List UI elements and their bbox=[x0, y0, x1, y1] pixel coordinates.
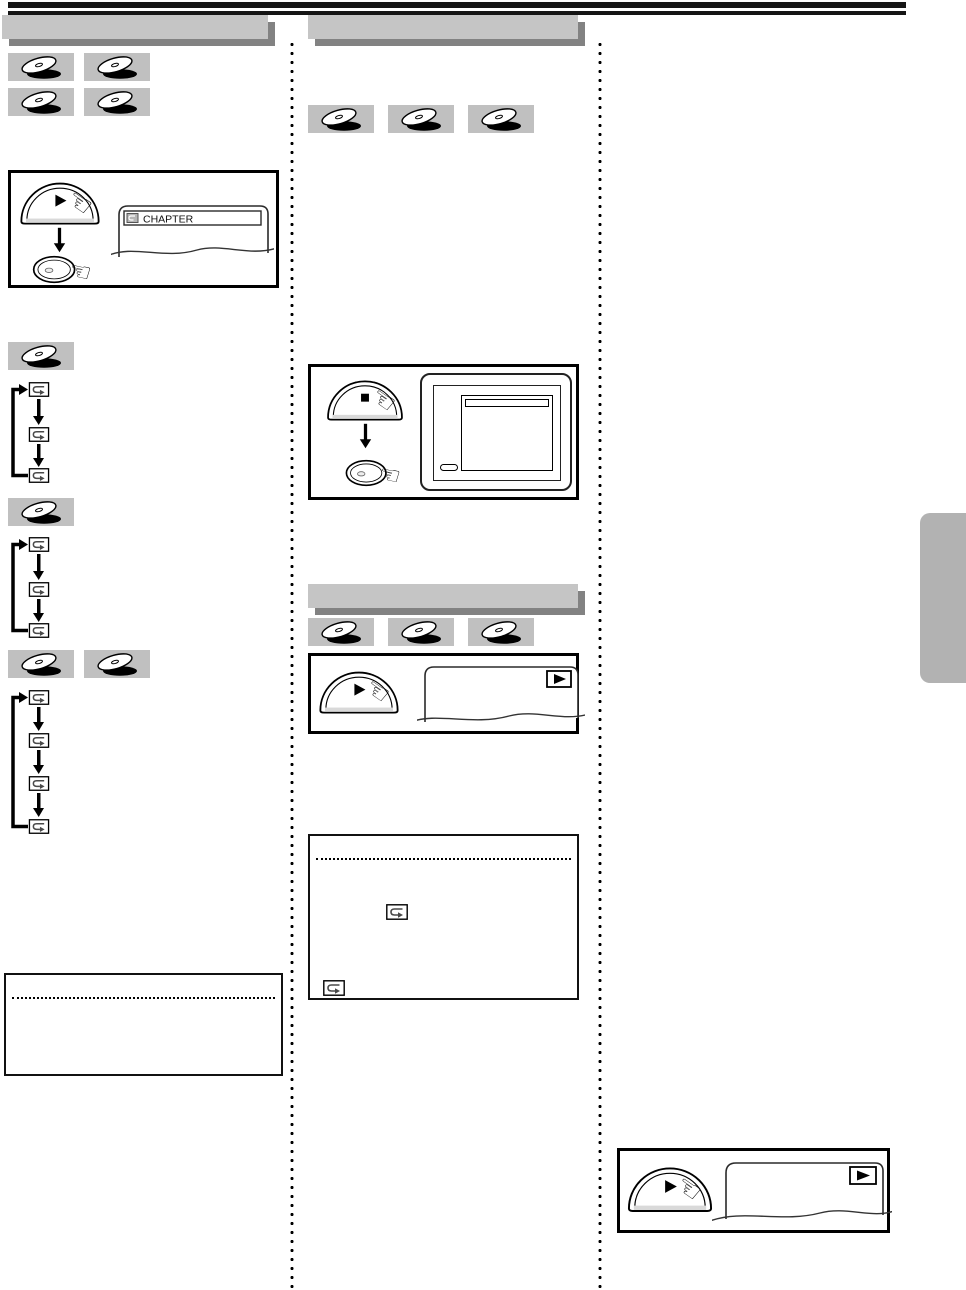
menu-pill bbox=[440, 464, 458, 471]
note-box bbox=[308, 834, 579, 1000]
repeat-icon bbox=[127, 214, 138, 223]
repeat-mode-cycle-diagram bbox=[4, 378, 62, 490]
disc-icon bbox=[8, 88, 74, 116]
repeat-icon bbox=[323, 980, 345, 996]
column-separator-right bbox=[598, 40, 602, 1290]
note-divider bbox=[12, 997, 275, 999]
disc-icon bbox=[8, 498, 74, 526]
repeat-mode-cycle-diagram bbox=[4, 533, 62, 645]
disc-icon bbox=[388, 105, 454, 133]
instruction-box-stop-menu: ☜ ☜ bbox=[308, 364, 579, 500]
osd-display: CHAPTER bbox=[111, 199, 274, 261]
section-header-middle-1 bbox=[308, 15, 578, 39]
instruction-box-chapter: ☜ ☜ CHAPTER bbox=[8, 170, 279, 288]
disc-icon bbox=[468, 105, 534, 133]
osd-display bbox=[712, 1155, 892, 1227]
manual-page: ☜ ☜ CHAPTER bbox=[0, 0, 966, 1290]
down-arrow-icon bbox=[359, 423, 372, 449]
page-edge-tab bbox=[920, 513, 966, 683]
top-rule-1 bbox=[8, 2, 906, 8]
osd-display bbox=[417, 660, 585, 728]
disc-icon bbox=[8, 342, 74, 370]
repeat-icon bbox=[386, 904, 408, 920]
disc-icon bbox=[84, 53, 150, 81]
disc-icon bbox=[308, 105, 374, 133]
down-arrow-icon bbox=[53, 227, 66, 253]
disc-icon bbox=[308, 618, 374, 646]
disc-icon bbox=[8, 650, 74, 678]
section-header-middle-2 bbox=[308, 584, 578, 608]
note-box bbox=[4, 973, 283, 1076]
menu-title-bar bbox=[465, 399, 549, 407]
disc-icon bbox=[84, 650, 150, 678]
note-divider bbox=[316, 858, 571, 860]
column-separator-left bbox=[290, 40, 294, 1290]
disc-icon bbox=[84, 88, 150, 116]
section-header-left bbox=[2, 15, 268, 39]
repeat-mode-cycle-diagram bbox=[4, 686, 62, 838]
instruction-box-play-right: ☜ bbox=[617, 1148, 890, 1233]
hand-icon: ☜ bbox=[377, 461, 403, 489]
hand-icon: ☜ bbox=[67, 257, 94, 286]
disc-icon bbox=[388, 618, 454, 646]
instruction-box-play: ☜ bbox=[308, 653, 579, 734]
disc-icon bbox=[468, 618, 534, 646]
tv-screen bbox=[420, 373, 572, 491]
disc-icon bbox=[8, 53, 74, 81]
osd-label: CHAPTER bbox=[143, 214, 194, 226]
screen-area bbox=[433, 385, 561, 481]
